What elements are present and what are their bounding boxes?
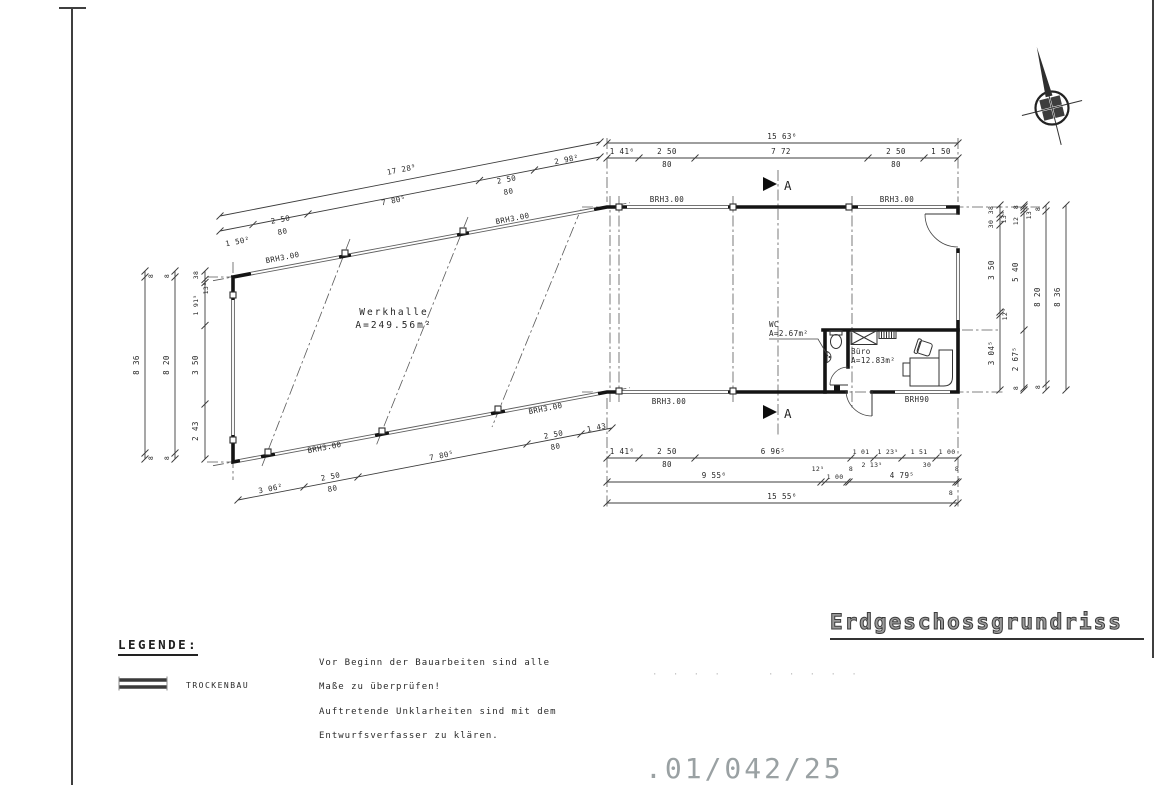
desk-return	[939, 350, 953, 386]
section-label-bottom: A	[784, 406, 793, 421]
dim-label: 3 50	[987, 260, 996, 280]
note-line: Maße zu überprüfen!	[319, 682, 441, 692]
dim-label: 80	[327, 483, 338, 494]
dim-label: 1 01	[853, 448, 870, 456]
dim-label: 13⁵	[1000, 211, 1008, 224]
dim-label: 80	[891, 160, 901, 169]
floor-plan: A A	[0, 0, 1170, 585]
dim-label: 7 80⁵	[429, 449, 455, 463]
dim-label: 8	[1034, 207, 1042, 211]
brh90-label: BRH90	[905, 395, 930, 404]
dim-label: 1 50²	[225, 235, 251, 249]
dim-label: 80	[662, 160, 672, 169]
dim-label: 8 20	[1033, 287, 1042, 307]
dim-label: 38	[987, 206, 995, 214]
main-door-arc-bottom-wall	[846, 390, 872, 416]
dim-label: 2 43	[191, 421, 200, 441]
dim-label: 13⁵	[1025, 207, 1033, 220]
dim-label: 2 50	[886, 147, 906, 156]
dim-label: 1 23⁵	[877, 448, 898, 456]
section-arrow-top-icon	[763, 177, 777, 191]
room-area-buero: A=12.83m²	[851, 356, 895, 365]
dim-label: 2 50	[657, 447, 677, 456]
legend-item-trockenbau: TROCKENBAU	[186, 681, 249, 690]
faint-dots-left: · · · ·	[652, 670, 725, 680]
dim-label: 8	[849, 465, 853, 473]
dim-label: 2 67⁵	[1011, 347, 1020, 372]
dim-label: 2 50	[270, 213, 291, 226]
faint-dots-right: · · · · ·	[768, 670, 862, 680]
legend-heading: LEGENDE:	[118, 637, 198, 656]
dim-label: 3 06²	[258, 482, 284, 496]
dim-label: 80	[550, 441, 561, 452]
dim-label: 8 36	[132, 355, 141, 375]
brh-label: BRH3.00	[652, 397, 686, 406]
dim-label: 17 28⁹	[386, 162, 417, 176]
dim-label: 12	[1012, 217, 1020, 225]
room-label-wc: WC	[769, 320, 779, 329]
dim-label: 1 41⁶	[610, 147, 635, 156]
room-label-werkhalle: Werkhalle	[359, 307, 428, 318]
note-line: Auftretende Unklarheiten sind mit dem	[319, 707, 556, 717]
wc-door-arc	[830, 367, 848, 385]
door-post	[834, 385, 840, 391]
dim-label: 9 55⁶	[702, 471, 727, 480]
desk-drawer	[903, 363, 910, 376]
dim-label: 8	[1034, 385, 1042, 389]
room-label-buero: Büro	[851, 347, 871, 356]
dim-label: 13⁵	[202, 282, 210, 295]
dim-label: 2 13⁵	[861, 461, 882, 469]
dim-label: 4 79⁵	[890, 471, 915, 480]
dimension-chains: 17 28⁹ 1 50² 2 50 80 7 80⁵ 2 50 80 2 98²…	[132, 132, 1070, 507]
wc-fixtures	[827, 331, 842, 363]
dim-label: 8	[163, 456, 171, 460]
dim-label: 1 43	[586, 421, 607, 434]
room-area-werkhalle: A=249.56m²	[355, 320, 432, 331]
brh-label: BRH3.00	[307, 440, 343, 455]
dim-label: 8 20	[162, 355, 171, 375]
dim-label: 30	[923, 461, 931, 469]
dim-label: 38	[192, 271, 200, 279]
drawing-number: .01/042/25	[645, 752, 844, 785]
dim-label: 1 00	[827, 473, 844, 481]
dim-label: 7 72	[771, 147, 791, 156]
dim-label: 15 63⁶	[767, 132, 797, 141]
dim-label: 12⁵	[812, 465, 825, 473]
dim-label: 8	[955, 465, 959, 473]
toilet-icon	[831, 335, 842, 349]
dim-label: 2 50	[496, 173, 517, 186]
construction-notes: Vor Beginn der Bauarbeiten sind alle Maß…	[319, 657, 556, 742]
dim-label: 80	[277, 226, 288, 237]
desk	[910, 358, 939, 386]
dim-label: 7 80⁵	[381, 194, 407, 208]
dim-label: 12⁵	[1001, 308, 1009, 321]
dim-label: 3 50	[191, 355, 200, 375]
brh-label: BRH3.00	[650, 195, 684, 204]
brh-label: BRH3.00	[880, 195, 914, 204]
dim-label: 5 40	[1011, 262, 1020, 282]
room-area-wc: A=2.67m²	[769, 329, 808, 338]
dim-label: 80	[662, 460, 672, 469]
section-arrow-bottom-icon	[763, 405, 777, 419]
note-line: Vor Beginn der Bauarbeiten sind alle	[319, 658, 550, 668]
dim-label: 15 55⁶	[767, 492, 797, 501]
dim-label: 8	[1012, 386, 1020, 390]
dim-label: 1 50	[931, 147, 951, 156]
dim-label: 2 50	[657, 147, 677, 156]
page-title: Erdgeschossgrundriss	[830, 610, 1144, 640]
north-arrow-icon	[1007, 39, 1092, 152]
dim-label: 8	[1012, 205, 1020, 209]
section-label-top: A	[784, 178, 793, 193]
dim-label: 8 36	[1053, 287, 1062, 307]
brh-label: BRH3.00	[528, 401, 564, 416]
dim-label: 1 51	[911, 448, 928, 456]
drawing-sheet: A A	[0, 0, 1170, 785]
dim-label: 8	[949, 489, 953, 497]
dim-label: 1 00	[939, 448, 956, 456]
trockenbau-symbol-icon	[116, 674, 172, 694]
note-line: Entwurfsverfasser zu klären.	[319, 731, 499, 741]
dim-label: 2 50	[543, 428, 564, 441]
dim-label: 3 04⁵	[987, 341, 996, 366]
dim-label: 8	[147, 274, 155, 278]
entry-door-arc-right-wall	[925, 214, 958, 247]
office-chair	[914, 338, 933, 357]
dim-label: 8	[163, 274, 171, 278]
dim-label: 6 96⁵	[761, 447, 786, 456]
dim-label: 1 41⁶	[610, 447, 635, 456]
dim-label: 2 98²	[554, 153, 580, 167]
dim-label: 80	[503, 186, 514, 197]
section-line: A A	[763, 170, 793, 437]
dim-label: 8	[147, 456, 155, 460]
dim-label: 30	[987, 220, 995, 228]
dim-label: 1 91⁵	[192, 294, 200, 315]
